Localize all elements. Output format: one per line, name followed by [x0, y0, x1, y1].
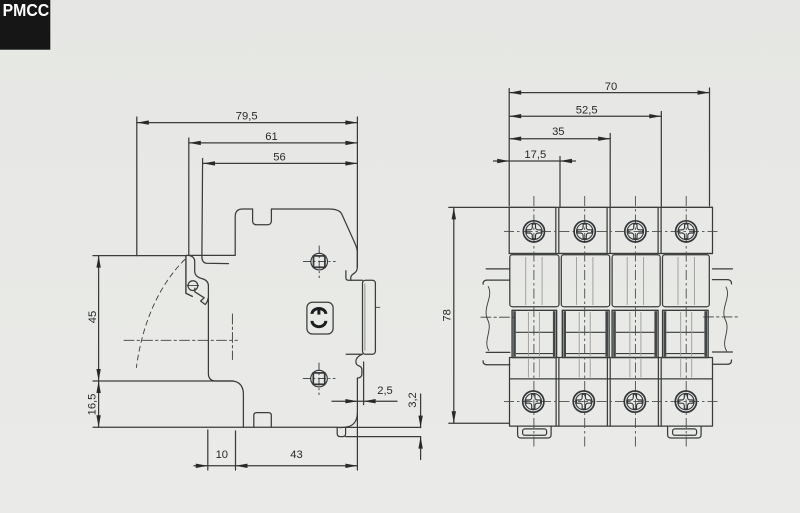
svg-text:3,2: 3,2 — [407, 392, 419, 408]
svg-text:16,5: 16,5 — [87, 394, 99, 416]
svg-text:56: 56 — [273, 151, 285, 163]
svg-text:2,5: 2,5 — [377, 385, 393, 397]
svg-text:70: 70 — [605, 81, 617, 93]
svg-text:61: 61 — [265, 131, 277, 143]
svg-text:78: 78 — [442, 309, 454, 321]
svg-text:45: 45 — [87, 311, 99, 323]
svg-text:43: 43 — [290, 449, 302, 461]
svg-text:PMCC: PMCC — [3, 0, 50, 20]
svg-text:10: 10 — [216, 449, 228, 461]
svg-text:17,5: 17,5 — [524, 149, 546, 161]
svg-text:35: 35 — [552, 126, 564, 138]
svg-text:52,5: 52,5 — [576, 104, 598, 116]
svg-text:79,5: 79,5 — [236, 110, 258, 122]
